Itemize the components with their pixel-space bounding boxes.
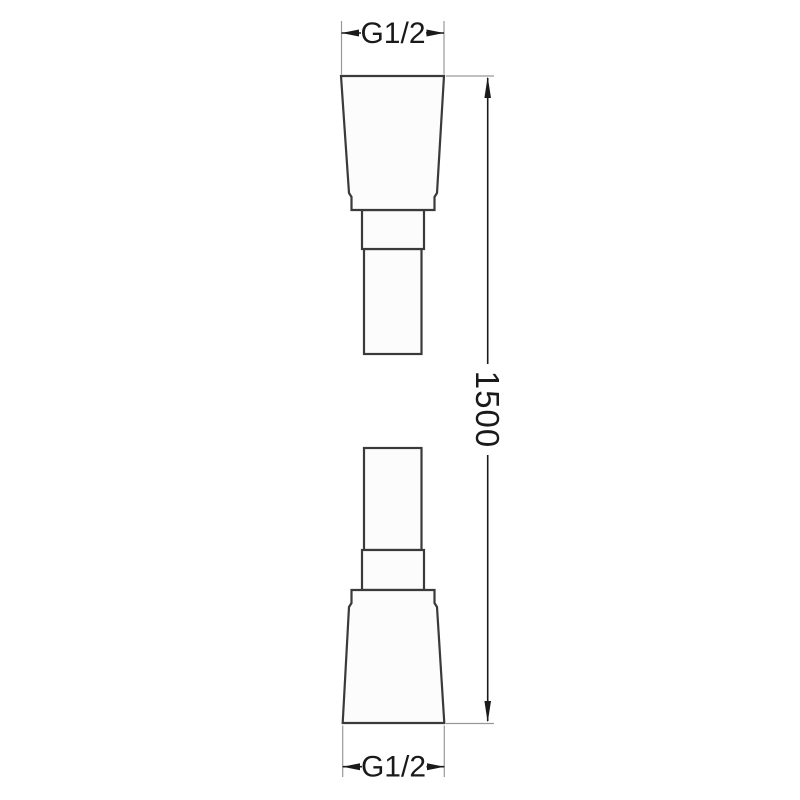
bottom-thread-label: G1/2 xyxy=(361,751,426,784)
arrow-right-icon xyxy=(427,30,445,37)
dimension-bottom-thread: G1/2 xyxy=(343,726,445,784)
top-connector xyxy=(341,76,444,354)
bottom-connector-nut xyxy=(343,590,445,723)
hose-dimension-drawing: G1/2 1500 xyxy=(0,0,800,800)
arrow-left-icon xyxy=(342,30,360,37)
drawing-canvas: G1/2 1500 xyxy=(0,0,800,800)
length-label: 1500 xyxy=(469,371,506,448)
top-connector-nut xyxy=(341,76,444,210)
arrow-down-icon xyxy=(484,701,491,723)
dimension-length: 1500 xyxy=(446,76,506,724)
arrow-left-icon xyxy=(343,763,360,770)
top-thread-label: G1/2 xyxy=(360,17,425,50)
top-hose-segment xyxy=(364,249,422,354)
bottom-connector-collar xyxy=(362,550,424,590)
top-connector-collar xyxy=(362,210,424,249)
arrow-right-icon xyxy=(427,763,444,770)
dimension-top-thread: G1/2 xyxy=(342,17,445,75)
arrow-up-icon xyxy=(484,77,491,99)
bottom-connector xyxy=(343,448,445,723)
bottom-hose-segment xyxy=(364,448,422,550)
